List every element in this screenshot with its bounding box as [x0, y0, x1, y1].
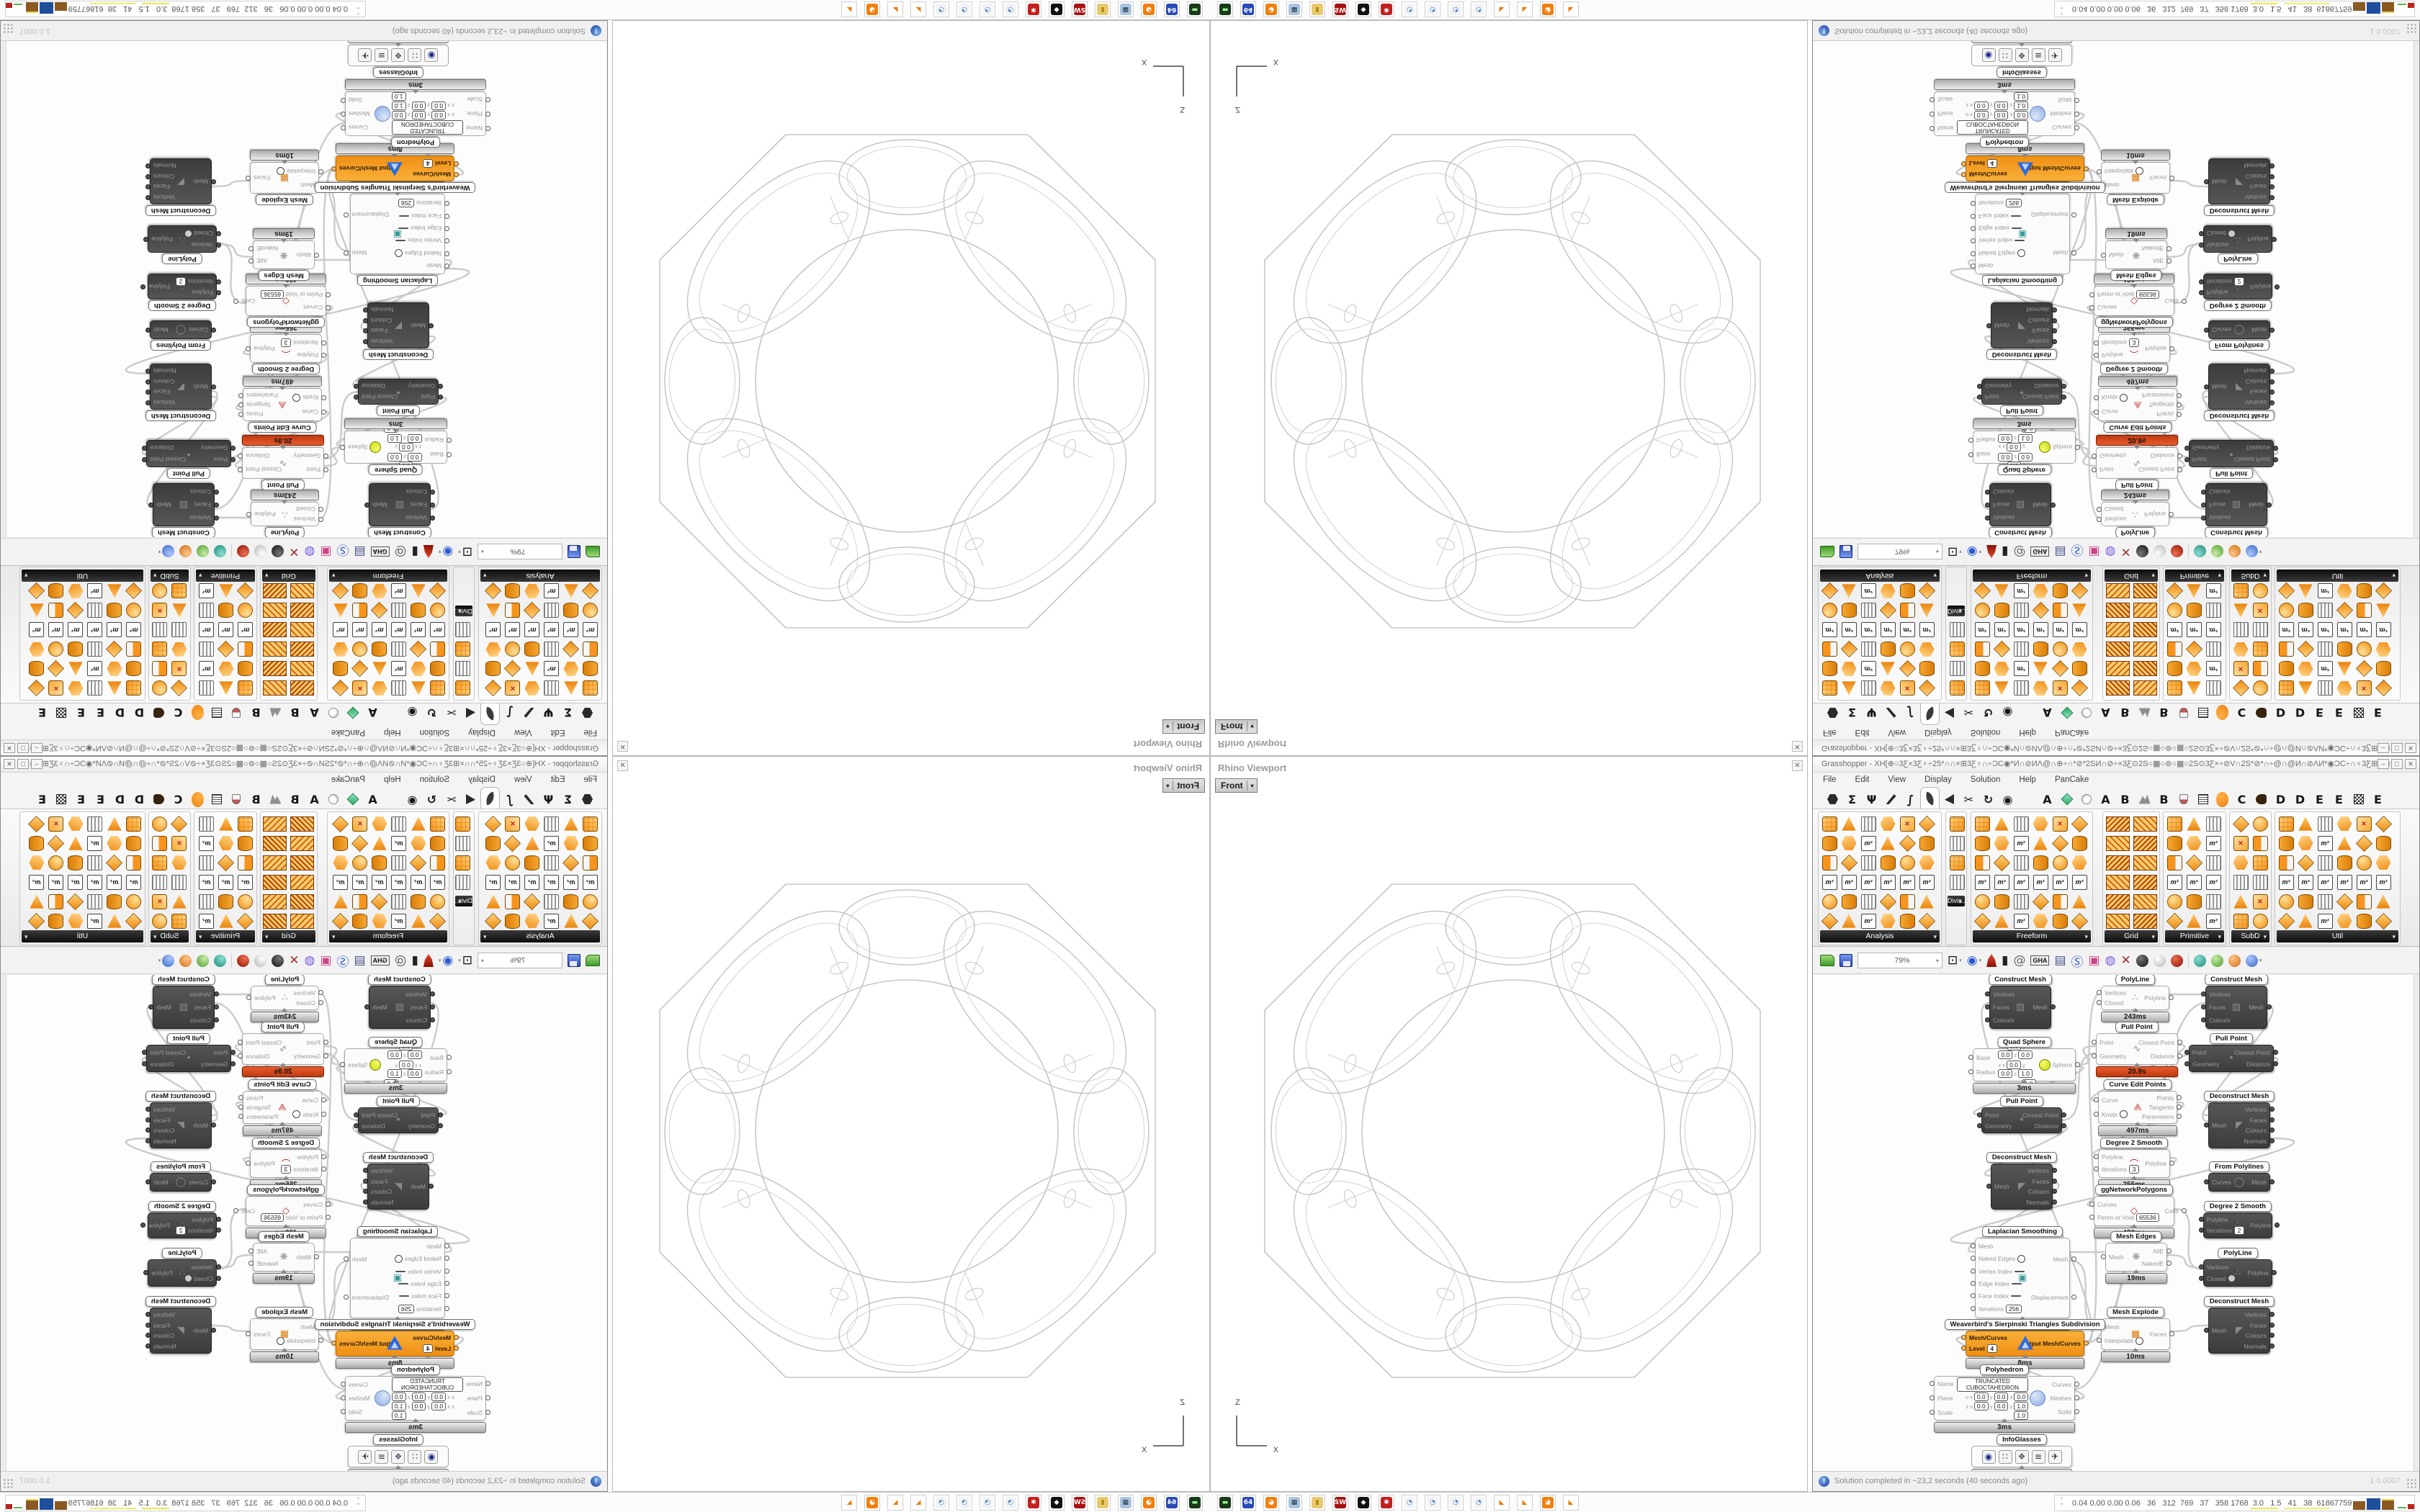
blender-icon[interactable]: ◣ — [910, 1, 926, 17]
component-icon[interactable] — [2106, 855, 2130, 870]
inkscape-icon[interactable]: ◆ — [1049, 1495, 1065, 1511]
component-icon[interactable] — [2106, 584, 2130, 599]
component-icon[interactable] — [68, 855, 84, 870]
component-icon[interactable] — [2033, 816, 2048, 832]
value-box[interactable]: 4 — [1987, 159, 1997, 168]
component-icon[interactable] — [1822, 894, 1837, 909]
component-icon[interactable]: m² — [1861, 662, 1876, 677]
component-tab-icon[interactable] — [2349, 703, 2368, 722]
component-icon[interactable]: m² — [2337, 623, 2352, 638]
component-icon[interactable]: m² — [2187, 875, 2202, 890]
editor-window-button[interactable]: ▤ — [2054, 953, 2066, 968]
component-icon[interactable] — [411, 662, 426, 677]
component-icon[interactable] — [2206, 894, 2221, 909]
sphere-blue-button[interactable]: ▾ — [158, 546, 175, 558]
component-tab-icon[interactable] — [149, 790, 169, 809]
blender-icon[interactable]: ◣ — [887, 1495, 903, 1511]
component-icon[interactable] — [2253, 816, 2268, 832]
zoom-level-select[interactable]: 79% — [478, 953, 563, 968]
component-tab-icon[interactable]: ∫ — [500, 790, 519, 809]
port-nub[interactable] — [2184, 1050, 2190, 1055]
component-icon[interactable] — [525, 855, 540, 870]
port-nub[interactable] — [1971, 1293, 1976, 1298]
port-nub[interactable] — [344, 1295, 349, 1300]
component-icon[interactable]: m² — [392, 623, 407, 638]
component-icon[interactable] — [172, 642, 187, 657]
menu-item-pancake[interactable]: PanCake — [2055, 728, 2089, 737]
port-nub[interactable] — [444, 226, 449, 231]
firefox-icon[interactable]: ◕ — [1263, 1, 1279, 17]
component-icon[interactable] — [219, 681, 234, 696]
gh-node-mesh-edges[interactable]: MeshAllENakedE❋ — [2105, 1243, 2167, 1272]
component-tab-icon[interactable]: Ψ — [539, 790, 558, 809]
port-nub[interactable] — [211, 1179, 216, 1184]
component-tab-icon[interactable]: ↻ — [1978, 790, 1998, 809]
gh-node-polyhedron[interactable]: NamePlaneScaleTRUNCATED CUBOCTAHEDRONo x… — [1934, 91, 2075, 136]
component-icon[interactable] — [2072, 662, 2087, 677]
component-icon[interactable] — [2106, 816, 2130, 832]
preview-eye-button[interactable]: ◉▾ — [1967, 953, 1981, 968]
sketch-flame-button[interactable] — [423, 545, 434, 558]
sphere-teal-button[interactable] — [214, 955, 226, 967]
component-icon[interactable]: m² — [333, 875, 349, 890]
component-tab-icon[interactable]: D — [130, 790, 149, 809]
component-icon[interactable] — [431, 855, 446, 870]
port-nub[interactable] — [354, 1123, 359, 1128]
component-icon[interactable] — [2233, 875, 2249, 890]
component-icon[interactable] — [1861, 603, 1876, 618]
component-tab-icon[interactable]: D — [2290, 703, 2310, 722]
component-icon[interactable] — [1881, 642, 1896, 657]
port-nub[interactable] — [2177, 1114, 2182, 1119]
component-icon[interactable] — [2106, 836, 2130, 851]
sphere-dark-button[interactable] — [272, 546, 284, 558]
component-icon[interactable] — [263, 855, 287, 870]
component-tab-icon[interactable]: E — [91, 703, 110, 722]
editor-window-button[interactable]: ▤ — [354, 544, 365, 559]
component-icon[interactable] — [263, 603, 287, 618]
port-nub[interactable] — [2166, 1248, 2172, 1254]
port-nub[interactable] — [143, 1270, 148, 1275]
port-nub[interactable] — [1971, 201, 1976, 206]
component-icon[interactable]: ✕ — [2233, 836, 2249, 851]
component-icon[interactable] — [353, 914, 368, 929]
port-nub[interactable] — [248, 259, 254, 264]
component-icon[interactable] — [2187, 584, 2202, 599]
canvas-scrollbar[interactable] — [2414, 975, 2419, 1472]
krita-icon[interactable]: ◔ — [1003, 1, 1018, 17]
component-icon[interactable] — [351, 660, 368, 677]
component-icon[interactable] — [2185, 854, 2202, 870]
search-button[interactable]: Ⓢ — [2071, 543, 2084, 561]
component-icon[interactable] — [1975, 836, 1990, 851]
port-nub[interactable] — [142, 457, 147, 462]
component-tab-icon[interactable] — [578, 790, 597, 809]
component-icon[interactable] — [1975, 681, 1990, 696]
gh-node-pull-point[interactable]: PointGeometryClosest PointDistance• — [1981, 1107, 2062, 1133]
gh-node-construct-mesh[interactable]: VerticesFacesColoursMesh▨ — [1989, 483, 2051, 526]
component-icon[interactable] — [2167, 681, 2182, 696]
port-nub[interactable] — [321, 1154, 326, 1159]
port-nub[interactable] — [1977, 1112, 1982, 1117]
component-icon[interactable] — [2187, 603, 2202, 618]
component-icon[interactable] — [1975, 603, 1990, 618]
port-nub[interactable] — [2267, 503, 2272, 508]
component-icon[interactable]: m² — [1861, 584, 1876, 599]
component-tab-icon[interactable] — [344, 790, 363, 809]
infoglasses-tile[interactable]: ◉ — [425, 49, 439, 63]
component-tab-icon[interactable]: E — [71, 790, 91, 809]
view-name-dropdown[interactable]: Front ▾ — [1162, 719, 1205, 734]
component-icon[interactable] — [2279, 816, 2294, 832]
component-tab-icon[interactable] — [2057, 790, 2076, 809]
gh-node-quad-sphere[interactable]: BaseRadiuso x 0.0 y 0.0 z 0.0z x 0.0 y 0… — [1973, 1048, 2076, 1081]
component-icon[interactable] — [1822, 816, 1837, 832]
component-icon[interactable] — [2355, 660, 2372, 677]
gh-node-infoglasses[interactable]: ◉∷❖≡✈ — [348, 45, 449, 66]
component-icon[interactable] — [1975, 816, 1990, 832]
component-tab-icon[interactable] — [52, 703, 71, 722]
component-icon[interactable] — [525, 584, 540, 599]
gh-node-mesh-edges[interactable]: MeshAllENakedE❋ — [253, 240, 315, 269]
infoglasses-tile[interactable]: ≡ — [375, 1450, 389, 1464]
port-nub[interactable] — [2092, 1040, 2097, 1045]
gh-node-construct-mesh[interactable]: VerticesFacesColoursMesh▨ — [2205, 483, 2267, 526]
component-icon[interactable] — [1840, 641, 1857, 657]
port-nub[interactable] — [2166, 259, 2172, 264]
component-icon[interactable] — [2106, 914, 2130, 929]
krita-icon[interactable]: ◔ — [933, 1495, 949, 1511]
component-icon[interactable] — [2185, 641, 2202, 657]
port-nub[interactable] — [148, 1004, 153, 1009]
component-icon[interactable] — [2376, 603, 2391, 618]
component-icon[interactable]: m² — [2014, 584, 2029, 599]
port-nub[interactable] — [438, 1123, 443, 1128]
component-icon[interactable] — [371, 602, 387, 618]
port-nub[interactable] — [1985, 503, 1990, 508]
component-icon[interactable]: m² — [2298, 623, 2313, 638]
component-icon[interactable] — [2071, 582, 2087, 599]
component-icon[interactable] — [485, 912, 501, 929]
component-icon[interactable]: m² — [2014, 623, 2029, 638]
component-icon[interactable] — [332, 912, 349, 929]
solidworks-icon[interactable]: SW — [1332, 1495, 1348, 1511]
infoglasses-tile[interactable]: ∷ — [408, 1450, 422, 1464]
component-icon[interactable] — [486, 603, 501, 618]
component-icon[interactable]: ✕ — [153, 894, 168, 909]
component-icon[interactable] — [2233, 894, 2249, 909]
component-icon[interactable] — [506, 855, 521, 870]
component-icon[interactable] — [525, 642, 540, 657]
component-icon[interactable]: ✕ — [2253, 894, 2268, 909]
value-box[interactable]: 2 — [2234, 277, 2244, 286]
component-icon[interactable] — [153, 875, 168, 890]
port-nub[interactable] — [2269, 379, 2275, 384]
component-icon[interactable] — [2167, 816, 2182, 832]
component-icon[interactable] — [2072, 603, 2087, 618]
port-nub[interactable] — [216, 243, 221, 248]
port-nub[interactable] — [2269, 369, 2275, 374]
port-nub[interactable] — [246, 995, 251, 1000]
gh-node-mesh-edges[interactable]: MeshAllENakedE❋ — [253, 1243, 315, 1272]
component-icon[interactable] — [456, 681, 471, 696]
port-nub[interactable] — [2273, 1050, 2278, 1055]
ribbon-group-label[interactable]: Util▾ — [22, 570, 143, 582]
sphere-dark-button[interactable] — [272, 955, 284, 967]
gh-node-weaverbird-s-sierpinski-triangles-subdivision[interactable]: Mesh/CurvesLevel4Output Mesh/Curves — [1966, 1331, 2084, 1356]
component-icon[interactable] — [2053, 603, 2068, 618]
component-icon[interactable] — [67, 893, 84, 909]
port-nub[interactable] — [354, 395, 359, 400]
component-icon[interactable] — [2298, 836, 2313, 851]
component-tab-icon[interactable]: C — [2232, 790, 2251, 809]
component-icon[interactable] — [1994, 662, 2009, 677]
component-tab-icon[interactable] — [480, 703, 500, 725]
component-icon[interactable] — [429, 582, 446, 599]
value-box[interactable]: 3 — [2129, 1165, 2139, 1174]
component-icon[interactable]: ✕ — [1900, 816, 1915, 832]
port-nub[interactable] — [230, 457, 236, 462]
component-icon[interactable] — [564, 836, 579, 851]
value-box[interactable] — [399, 1295, 409, 1297]
component-icon[interactable] — [88, 642, 103, 657]
component-icon[interactable] — [127, 855, 142, 870]
port-nub[interactable] — [2092, 468, 2097, 473]
gha-button[interactable]: GHA — [2030, 955, 2049, 966]
gh-node-construct-mesh[interactable]: VerticesFacesColoursMesh▨ — [369, 986, 431, 1029]
component-icon[interactable] — [544, 642, 560, 657]
gh-node-pull-point[interactable]: PointGeometryClosest PointDistance• — [358, 1107, 439, 1133]
component-icon[interactable] — [411, 914, 426, 929]
gh-node-deconstruct-mesh[interactable]: MeshVerticesFacesColoursNormals◤ — [2208, 158, 2270, 204]
component-icon[interactable] — [411, 816, 426, 832]
gh-node-weaverbird-s-sierpinski-triangles-subdivision[interactable]: Mesh/CurvesLevel4Output Mesh/Curves — [336, 156, 454, 181]
infoglasses-tile[interactable]: ≡ — [2032, 1450, 2045, 1464]
component-icon[interactable]: m² — [88, 662, 103, 677]
port-nub[interactable] — [344, 213, 349, 218]
component-tab-icon[interactable] — [227, 703, 246, 722]
component-icon[interactable] — [1900, 584, 1915, 599]
component-icon[interactable] — [583, 894, 599, 909]
component-icon[interactable] — [290, 681, 314, 696]
port-nub[interactable] — [2275, 284, 2280, 289]
component-icon[interactable]: ✕ — [172, 662, 187, 677]
value-box[interactable] — [2011, 215, 2021, 217]
port-nub[interactable] — [1971, 238, 1976, 243]
minimize-button[interactable]: – — [31, 743, 42, 753]
component-tab-icon[interactable]: ✂ — [1959, 790, 1978, 809]
component-tab-icon[interactable]: C — [169, 790, 188, 809]
menu-item-file[interactable]: File — [1823, 728, 1837, 737]
component-icon[interactable] — [2357, 914, 2372, 929]
component-icon[interactable] — [372, 681, 387, 696]
gh-node-weaverbird-s-sierpinski-triangles-subdivision[interactable]: Mesh/CurvesLevel4Output Mesh/Curves — [1966, 156, 2084, 181]
component-icon[interactable] — [2279, 662, 2294, 677]
component-icon[interactable] — [544, 603, 560, 618]
component-icon[interactable] — [1842, 836, 1857, 851]
component-icon[interactable] — [392, 603, 407, 618]
component-icon[interactable] — [219, 584, 234, 599]
port-nub[interactable] — [1986, 323, 1991, 328]
gear-red-icon[interactable]: ✱ — [1026, 1, 1041, 17]
component-icon[interactable] — [107, 584, 122, 599]
component-tab-icon[interactable] — [461, 790, 480, 809]
component-icon[interactable]: m² — [525, 875, 540, 890]
sphere-wire-button[interactable] — [254, 546, 266, 558]
component-icon[interactable]: m² — [1994, 623, 2009, 638]
component-icon[interactable]: m² — [2318, 623, 2333, 638]
open-file-button[interactable] — [1820, 546, 1834, 557]
component-icon[interactable] — [456, 836, 471, 851]
component-icon[interactable]: m² — [1861, 875, 1876, 890]
component-tab-icon[interactable]: A — [363, 703, 382, 722]
port-nub[interactable] — [2204, 1328, 2209, 1333]
component-icon[interactable] — [332, 582, 349, 599]
port-nub[interactable] — [2169, 1331, 2174, 1336]
menu-item-edit[interactable]: Edit — [551, 775, 565, 784]
port-nub[interactable] — [2201, 991, 2206, 996]
component-tab-icon[interactable]: ◉ — [1998, 790, 2017, 809]
component-tab-icon[interactable] — [1823, 790, 1842, 809]
component-icon[interactable] — [506, 894, 521, 909]
component-icon[interactable]: m² — [88, 914, 103, 929]
vm-display-icon[interactable]: ▬ — [1187, 1, 1203, 17]
component-icon[interactable] — [1919, 603, 1935, 618]
component-icon[interactable] — [2253, 662, 2268, 677]
port-nub[interactable] — [2071, 1256, 2076, 1261]
component-icon[interactable] — [263, 914, 287, 929]
port-nub[interactable] — [318, 517, 323, 522]
gh-node-polyline[interactable]: VerticesClosedPolyline∴ — [2203, 225, 2272, 253]
gh-node-construct-mesh[interactable]: VerticesFacesColoursMesh▨ — [369, 483, 431, 526]
port-nub[interactable] — [142, 1050, 147, 1055]
component-icon[interactable] — [544, 681, 560, 696]
component-icon[interactable] — [429, 912, 446, 929]
component-icon[interactable] — [456, 875, 471, 890]
component-icon[interactable] — [28, 582, 45, 599]
port-nub[interactable] — [2199, 290, 2204, 295]
component-icon[interactable]: m² — [2014, 875, 2029, 890]
value-box[interactable]: 2 — [2234, 1226, 2244, 1235]
gh-node-pull-point[interactable]: PointGeometryClosest PointDistance• — [358, 379, 439, 405]
port-nub[interactable] — [2061, 1112, 2066, 1117]
krita-icon[interactable]: ◔ — [980, 1, 995, 17]
component-icon[interactable] — [563, 641, 579, 657]
save-file-button[interactable] — [568, 545, 581, 558]
component-icon[interactable] — [28, 912, 45, 929]
port-nub[interactable] — [145, 1107, 151, 1112]
port-nub[interactable] — [454, 172, 459, 177]
component-icon[interactable] — [2318, 681, 2333, 696]
port-nub[interactable] — [145, 369, 151, 374]
canvas-scrollbar[interactable] — [1, 40, 6, 537]
port-nub[interactable] — [1977, 395, 1982, 400]
save-file-button[interactable] — [1839, 545, 1852, 558]
component-tab-icon[interactable]: A — [2038, 790, 2057, 809]
port-nub[interactable] — [2199, 279, 2204, 284]
sphere-red-button[interactable] — [2171, 546, 2183, 558]
port-nub[interactable] — [321, 410, 326, 415]
component-icon[interactable] — [2072, 836, 2087, 851]
component-icon[interactable] — [290, 642, 314, 657]
component-icon[interactable] — [290, 914, 314, 929]
port-nub[interactable] — [211, 1328, 216, 1333]
component-icon[interactable] — [88, 681, 103, 696]
component-tab-icon[interactable] — [1881, 790, 1901, 809]
port-nub[interactable] — [145, 163, 151, 168]
sphere-teal-button[interactable] — [214, 546, 226, 558]
gh-node-laplacian-smoothing[interactable]: MeshNaked EdgesVertex Index Edge Index F… — [350, 1238, 445, 1318]
open-file-button[interactable] — [586, 546, 600, 557]
component-icon[interactable] — [1975, 855, 1990, 870]
krita-icon[interactable]: ◔ — [1402, 1495, 1417, 1511]
component-icon[interactable] — [1950, 816, 1965, 832]
component-icon[interactable] — [127, 816, 142, 832]
port-nub[interactable] — [444, 1293, 449, 1298]
port-nub[interactable] — [2184, 1061, 2190, 1066]
component-icon[interactable] — [172, 914, 187, 929]
package-button[interactable]: ▣ — [2089, 953, 2100, 968]
component-icon[interactable]: m² — [200, 584, 215, 599]
port-nub[interactable] — [1985, 1004, 1990, 1009]
component-icon[interactable]: m² — [1881, 623, 1896, 638]
component-icon[interactable] — [486, 836, 501, 851]
viewport-close-button[interactable]: ✕ — [617, 760, 628, 771]
component-icon[interactable] — [2298, 914, 2313, 929]
component-icon[interactable] — [2106, 875, 2130, 890]
component-icon[interactable] — [2233, 914, 2249, 929]
component-icon[interactable]: m² — [127, 623, 142, 638]
port-nub[interactable] — [444, 214, 449, 219]
component-icon[interactable]: m² — [1822, 875, 1837, 890]
component-icon[interactable] — [219, 662, 234, 677]
component-icon[interactable]: m² — [1975, 623, 1990, 638]
gh-node-from-polylines[interactable]: CurvesMesh◯ — [150, 320, 212, 339]
port-nub[interactable] — [2184, 446, 2190, 451]
ribbon-group-label[interactable]: Analysis▾ — [480, 570, 600, 582]
component-icon[interactable] — [2014, 603, 2029, 618]
component-icon[interactable] — [2014, 681, 2029, 696]
component-icon[interactable] — [2106, 603, 2130, 618]
port-nub[interactable] — [1985, 490, 1990, 495]
menu-item-help[interactable]: Help — [2019, 728, 2036, 737]
sphere-green-button[interactable] — [197, 546, 209, 558]
component-icon[interactable] — [1950, 623, 1965, 638]
port-nub[interactable] — [344, 1256, 349, 1261]
component-icon[interactable]: m² — [2357, 623, 2372, 638]
component-tab-icon[interactable]: ↻ — [422, 790, 442, 809]
component-icon[interactable] — [1861, 855, 1876, 870]
component-icon[interactable] — [583, 662, 599, 677]
component-icon[interactable] — [351, 834, 368, 851]
calculator-icon[interactable]: ▦ — [1118, 1495, 1134, 1511]
ribbon-group-label[interactable]: Grid▾ — [262, 930, 315, 942]
component-tab-icon[interactable] — [2135, 703, 2154, 722]
component-icon[interactable] — [28, 815, 45, 832]
sphere-red-button[interactable] — [2171, 955, 2183, 967]
clip-cylinder-button[interactable]: ▮ — [412, 953, 418, 968]
port-nub[interactable] — [214, 516, 219, 521]
port-nub[interactable] — [363, 328, 368, 333]
port-nub[interactable] — [2269, 328, 2275, 333]
component-tab-icon[interactable]: Σ — [1842, 703, 1862, 722]
component-icon[interactable] — [290, 584, 314, 599]
component-icon[interactable] — [2072, 855, 2087, 870]
krita-icon[interactable]: ◔ — [1471, 1, 1487, 17]
port-nub[interactable] — [216, 1264, 221, 1269]
component-icon[interactable] — [238, 836, 254, 851]
component-icon[interactable] — [237, 582, 254, 599]
